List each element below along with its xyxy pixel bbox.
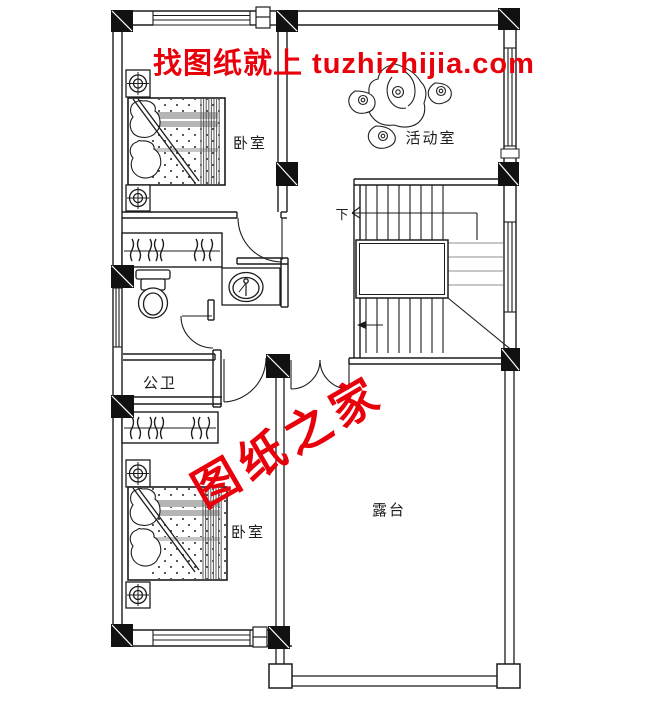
wall-sill-right [501, 149, 519, 158]
floor-plan-svg: 下 [0, 0, 650, 715]
room-label-activity: 活动室 [405, 130, 456, 147]
terrace-corner-post [497, 664, 520, 688]
room-label-bathroom: 公卫 [143, 375, 177, 392]
stair-landing-void [356, 240, 448, 298]
door-bedroom-bottom [224, 358, 266, 402]
window-top [153, 11, 250, 25]
stair-direction-line [352, 207, 477, 240]
terrace-corner-post [269, 664, 292, 688]
bed-top [128, 98, 225, 185]
wall-flue-bottom [253, 627, 267, 647]
door-bathroom [181, 316, 213, 348]
window-right-lower [504, 222, 516, 312]
watermark-site-top: 找图纸就上 tuzhizhijia.com [153, 46, 535, 80]
sink-counter [222, 268, 280, 305]
stair-down-label: 下 [335, 207, 348, 222]
door-bedroom-top [238, 218, 282, 262]
interior-walls [122, 25, 503, 407]
column [266, 354, 290, 378]
nightstand-bottom-2 [126, 582, 150, 608]
wardrobe-top [122, 233, 222, 267]
column [111, 265, 134, 288]
nightstand-top-1 [126, 70, 150, 97]
stairs: 下 [335, 179, 514, 358]
window-bottom [153, 630, 250, 646]
column [276, 162, 298, 186]
floor-plan-page: 下 [0, 0, 650, 715]
column [498, 8, 520, 30]
toilet [136, 270, 170, 318]
stair-winder-treads [448, 243, 503, 285]
stair-run-arrow [357, 321, 383, 329]
column [268, 626, 290, 649]
nightstand-bottom-1 [126, 460, 150, 487]
wardrobe-bottom [122, 412, 218, 443]
column [111, 395, 134, 418]
nightstand-top-2 [126, 185, 150, 211]
window-left [113, 288, 122, 347]
room-label-bedroom-top: 卧室 [233, 135, 267, 152]
column [498, 162, 519, 186]
column [501, 348, 520, 371]
room-label-terrace: 露台 [372, 502, 406, 519]
room-label-bedroom-bottom: 卧室 [231, 524, 265, 541]
column [111, 10, 133, 32]
column [276, 10, 298, 32]
column [111, 624, 133, 647]
wall-flue-top [256, 7, 270, 28]
